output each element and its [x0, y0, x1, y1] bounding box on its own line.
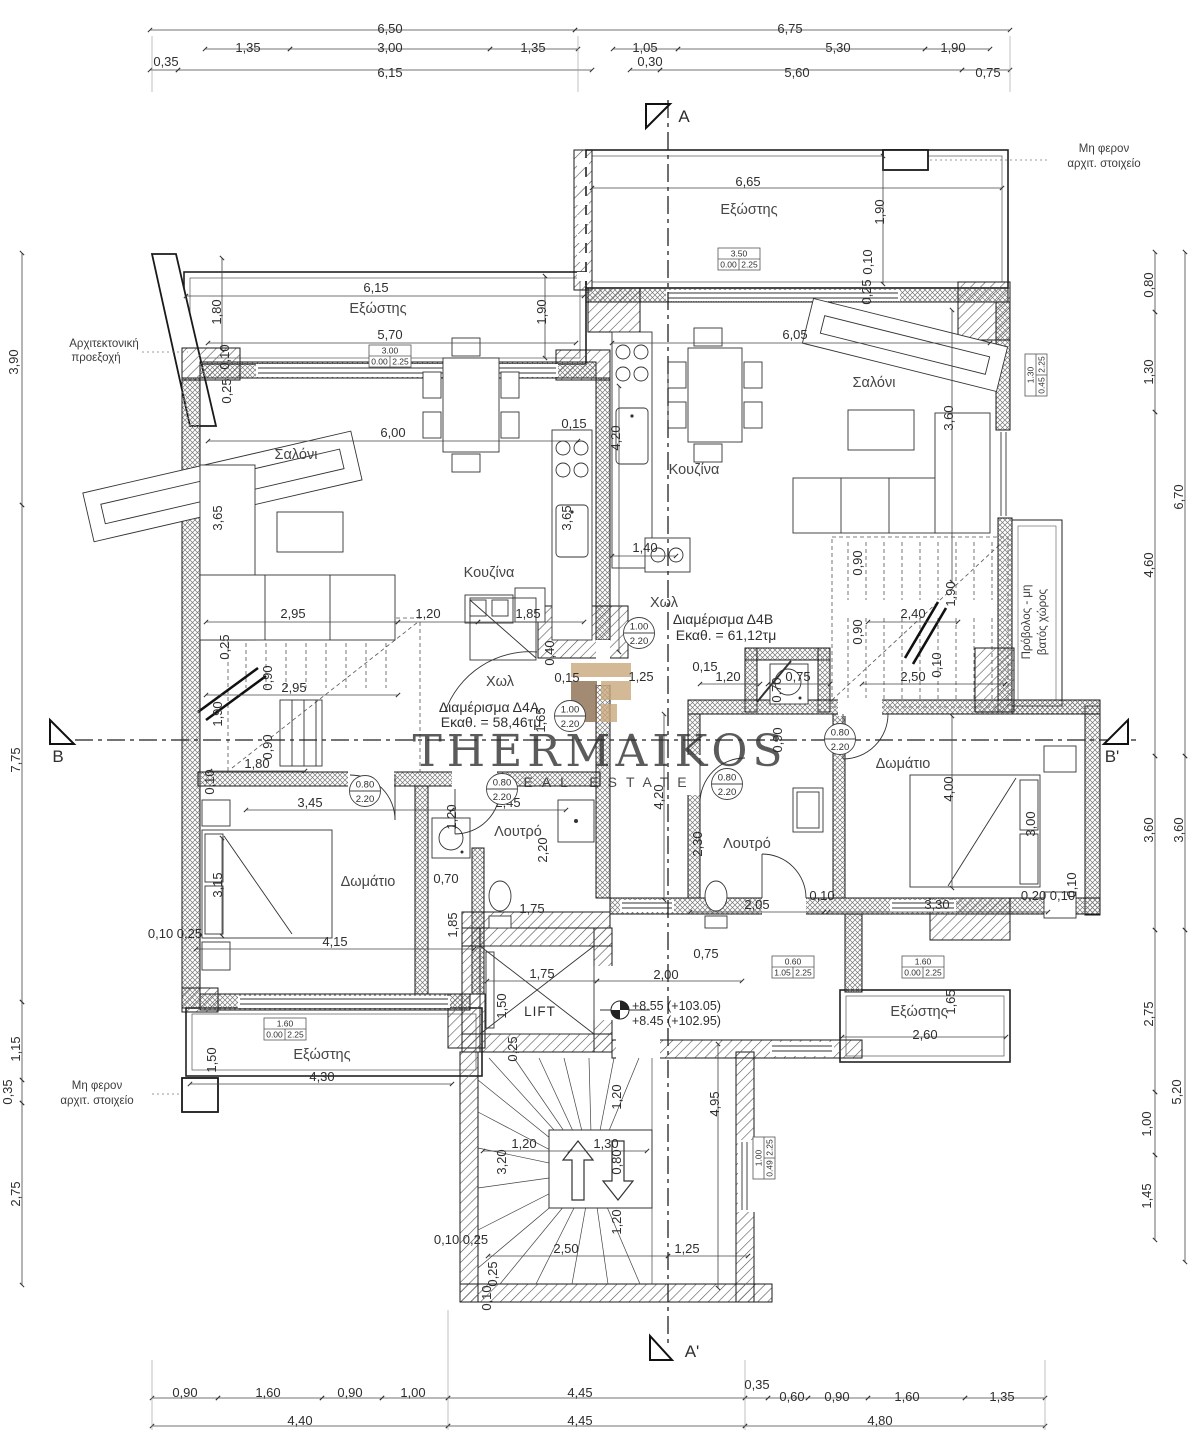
dimension-label: 4,20	[608, 425, 623, 450]
dimension-label: 1,60	[894, 1389, 919, 1404]
dimension-label: 1,75	[519, 901, 544, 916]
svg-text:0.45: 0.45	[1037, 377, 1047, 394]
dimension-label: 2,00	[653, 967, 678, 982]
annotation-label: βατός χώρος	[1037, 588, 1049, 655]
dimension-label: 4,60	[1141, 552, 1156, 577]
dimension-label: 0,90	[850, 550, 865, 575]
window-size-tag: 1.300.452.25	[1025, 354, 1047, 396]
dimension-label: 6,50	[377, 21, 402, 36]
dimension-label: 0,35	[153, 54, 178, 69]
dimension-label: 6,70	[1171, 484, 1186, 509]
window-size-tag: 3.500.002.25	[718, 248, 760, 270]
door-size-tag: 1.002.20	[624, 618, 655, 649]
svg-text:1.00: 1.00	[754, 1149, 764, 1166]
dimension-label: 3,15	[210, 872, 225, 897]
svg-text:2.20: 2.20	[831, 742, 850, 753]
dimension-label: 4,45	[567, 1413, 592, 1428]
dimension-label: 4,80	[867, 1413, 892, 1428]
window-size-tag: 1.600.002.25	[902, 956, 944, 978]
svg-text:0.00: 0.00	[266, 1030, 283, 1040]
dimension-label: 0,40	[542, 640, 557, 665]
dimension-label: 0,15	[554, 670, 579, 685]
svg-text:0.00: 0.00	[904, 968, 921, 978]
dimension-label: 0,25	[217, 634, 232, 659]
room-label: Χωλ	[650, 595, 679, 611]
dimension-label: 0,25	[485, 1261, 500, 1286]
room-label: Σαλόνι	[853, 375, 896, 391]
dimension-label: 4,45	[567, 1385, 592, 1400]
svg-text:2.20: 2.20	[356, 794, 375, 805]
dimension-label: 1,90	[534, 299, 549, 324]
door-size-tag: 0.802.20	[825, 724, 856, 755]
dimension-label: 1,20	[511, 1136, 536, 1151]
dimension-label: 3,65	[559, 505, 574, 530]
annotation-label: αρχιτ. στοιχείο	[60, 1095, 133, 1107]
floor-plan-drawing: 6,506,751,353,001,351,055,301,900,356,15…	[0, 0, 1200, 1440]
dimension-label: 1,35	[235, 40, 260, 55]
dimension-label: 4,95	[707, 1091, 722, 1116]
section-marker-b-icon	[50, 720, 74, 744]
dimension-label: 1,30	[1141, 359, 1156, 384]
dimension-label: 4,40	[287, 1413, 312, 1428]
dimension-label: 0,80	[609, 1149, 624, 1174]
dimension-label: 3,90	[6, 349, 21, 374]
dimension-label: 0,15	[692, 659, 717, 674]
svg-text:1.60: 1.60	[915, 957, 932, 967]
svg-text:1.00: 1.00	[561, 705, 580, 716]
dimension-label: 7,75	[8, 747, 23, 772]
elevation-label: +8.45 (+102.95)	[632, 1014, 721, 1028]
dimension-label: 0,35	[744, 1377, 769, 1392]
dimension-label: 1,20	[609, 1084, 624, 1109]
door-size-tag: 0.802.20	[712, 769, 743, 800]
room-label: Εξώστης	[293, 1047, 350, 1063]
dimension-label: 0,90	[337, 1385, 362, 1400]
dimension-label: 2,75	[8, 1181, 23, 1206]
dimension-label: 3,00	[1023, 811, 1038, 836]
dimension-label: 0,10	[217, 344, 232, 369]
svg-text:2.25: 2.25	[795, 968, 812, 978]
window-size-tag: 3.000.002.25	[369, 345, 411, 367]
dimension-label: 0,25	[219, 378, 234, 403]
dimension-label: 1,20	[444, 804, 459, 829]
room-label: Δωμάτιο	[341, 874, 396, 890]
dimension-label: 5,20	[1169, 1079, 1184, 1104]
annotation-label: Πρόβολος - μη	[1021, 585, 1033, 660]
dimension-label: 0,10	[860, 249, 875, 274]
dimension-label: 0,70	[433, 871, 458, 886]
dimension-label: 5,60	[784, 65, 809, 80]
watermark-tagline: REAL ESTATE	[504, 774, 695, 790]
svg-text:3.50: 3.50	[731, 249, 748, 259]
dimension-label: 6,15	[377, 65, 402, 80]
dimension-label: 6,75	[777, 21, 802, 36]
door-size-tag: 0.802.20	[350, 776, 381, 807]
dimension-label: 0,75	[785, 669, 810, 684]
dimension-label: 0,90	[172, 1385, 197, 1400]
dimension-label: 0,80	[1141, 272, 1156, 297]
svg-text:0.80: 0.80	[831, 728, 850, 739]
dimension-label: 0,25	[859, 279, 874, 304]
dimension-label: 1,20	[609, 1209, 624, 1234]
non-bearing-element-top	[883, 150, 928, 170]
dimension-label: 0,35	[0, 1079, 15, 1104]
apartment-label: Διαμέρισμα Δ4Α	[439, 699, 540, 715]
dimension-label: 1,00	[400, 1385, 425, 1400]
dimension-label: 6,00	[380, 425, 405, 440]
dimension-label: 0,10	[929, 652, 944, 677]
dimension-label: 2,50	[553, 1241, 578, 1256]
dimension-label: 0,75	[693, 946, 718, 961]
dimension-label: 1,35	[520, 40, 545, 55]
svg-text:2.25: 2.25	[925, 968, 942, 978]
svg-text:1.30: 1.30	[1026, 366, 1036, 383]
svg-text:0.80: 0.80	[493, 778, 512, 789]
annotation-label: προεξοχή	[71, 352, 120, 364]
section-marker-a2-icon	[650, 1336, 672, 1360]
lift-label: LIFT	[524, 1004, 556, 1019]
dimension-label: 0,75	[975, 65, 1000, 80]
annotation-label: Μη φερον	[1079, 143, 1130, 155]
room-label: Κουζίνα	[669, 462, 720, 478]
dimension-label: 6,15	[363, 280, 388, 295]
dimension-label: 2,95	[280, 606, 305, 621]
room-label: Εξώστης	[349, 301, 406, 317]
svg-text:2.25: 2.25	[287, 1030, 304, 1040]
floor-plan-page: 6,506,751,353,001,351,055,301,900,356,15…	[0, 0, 1200, 1440]
dimension-label: 1,20	[415, 606, 440, 621]
dimension-label: 3,00	[377, 40, 402, 55]
dimension-label: 1,90	[872, 199, 887, 224]
dimension-label: 1,90	[940, 40, 965, 55]
elevation-label: +8.55 (+103.05)	[632, 999, 721, 1013]
dimension-label: 2,40	[900, 606, 925, 621]
dimension-label: 3,30	[924, 897, 949, 912]
room-label: Σαλόνι	[275, 447, 318, 463]
dimension-label: 1,80	[244, 756, 269, 771]
dimension-label: 2,95	[281, 680, 306, 695]
door-size-tag: 1.002.20	[555, 701, 586, 732]
svg-text:0.49: 0.49	[765, 1160, 775, 1177]
dimension-label: 1,25	[628, 669, 653, 684]
dimension-label: 3,60	[1141, 817, 1156, 842]
window-size-tag: 1.000.492.25	[753, 1137, 775, 1179]
dimension-label: 4,15	[322, 934, 347, 949]
dimension-label: 0,10 0,25	[148, 926, 202, 941]
section-marker-label: B'	[1105, 747, 1120, 766]
dimension-label: 0,10	[809, 888, 834, 903]
svg-text:2.20: 2.20	[561, 719, 580, 730]
dimension-label: 1,80	[209, 299, 224, 324]
dimension-label: 0,15	[561, 416, 586, 431]
dimension-label: 0,70	[769, 677, 784, 702]
room-label: Χωλ	[486, 674, 515, 690]
dimension-label: 1,05	[632, 40, 657, 55]
dimension-label: 4,00	[941, 776, 956, 801]
section-marker-b2-icon	[1104, 720, 1128, 744]
dimension-label: 1,15	[8, 1036, 23, 1061]
svg-text:0.80: 0.80	[356, 780, 375, 791]
dimension-label: 1,65	[943, 989, 958, 1014]
dimension-label: 2,05	[744, 897, 769, 912]
dimension-label: 1,40	[632, 540, 657, 555]
non-bearing-element-bottom	[182, 1078, 218, 1112]
section-marker-label: A	[678, 107, 690, 126]
svg-text:1.60: 1.60	[277, 1019, 294, 1029]
dimension-label: 1,25	[674, 1241, 699, 1256]
dimension-label: 2,50	[900, 669, 925, 684]
dimension-label: 1,35	[989, 1389, 1014, 1404]
annotation-label: Μη φερον	[72, 1080, 123, 1092]
dimension-label: 0,25	[505, 1036, 520, 1061]
svg-text:0.60: 0.60	[785, 957, 802, 967]
svg-text:2.25: 2.25	[392, 357, 409, 367]
dimension-label: 2,20	[535, 837, 550, 862]
dimension-label: 5,30	[825, 40, 850, 55]
svg-text:2.25: 2.25	[741, 260, 758, 270]
section-marker-label: A'	[685, 1342, 700, 1361]
room-label: Δωμάτιο	[876, 756, 931, 772]
apartment-label: Διαμέρισμα Δ4Β	[673, 611, 773, 627]
room-label: Εξώστης	[720, 202, 777, 218]
svg-text:0.80: 0.80	[718, 773, 737, 784]
section-marker-label: B	[52, 747, 63, 766]
dimension-label: 3,65	[210, 505, 225, 530]
dimension-label: 1,90	[210, 701, 225, 726]
dimension-label: 3,60	[1171, 817, 1186, 842]
svg-text:2.20: 2.20	[630, 636, 649, 647]
svg-text:2.20: 2.20	[493, 792, 512, 803]
svg-text:2.20: 2.20	[718, 787, 737, 798]
dimension-label: 0,90	[260, 665, 275, 690]
dimension-label: 0,10	[202, 769, 217, 794]
dimension-label: 1,90	[943, 581, 958, 606]
window-size-tag: 0.601.052.25	[772, 956, 814, 978]
svg-text:1.00: 1.00	[630, 622, 649, 633]
room-label: Λουτρό	[723, 836, 771, 852]
dimension-label: 0,10	[479, 1285, 494, 1310]
apartment-label: Εκαθ. = 61,12τμ	[676, 627, 777, 643]
dimension-label: 1,85	[445, 912, 460, 937]
dimension-label: 2,75	[1141, 1001, 1156, 1026]
dimension-label: 2,60	[912, 1027, 937, 1042]
dimension-label: 1,20	[715, 669, 740, 684]
dimension-label: 0,10	[1064, 872, 1079, 897]
dimension-label: 3,60	[941, 405, 956, 430]
dimension-label: 1,75	[529, 966, 554, 981]
dimension-label: 1,30	[593, 1136, 618, 1151]
dimension-label: 0,10 0,25	[434, 1232, 488, 1247]
door-size-tag: 0.802.20	[487, 774, 518, 805]
dimension-label: 4,30	[309, 1069, 334, 1084]
dimension-label: 0,30	[637, 54, 662, 69]
left-living	[83, 338, 519, 640]
window-size-tag: 1.600.002.25	[264, 1018, 306, 1040]
dimension-label: 0,90	[824, 1389, 849, 1404]
svg-text:1.05: 1.05	[774, 968, 791, 978]
dimension-label: 6,05	[782, 327, 807, 342]
section-marker-a-icon	[646, 104, 670, 128]
room-label: Κουζίνα	[464, 565, 515, 581]
dimension-label: 2,30	[690, 831, 705, 856]
dimension-label: 1,50	[494, 993, 509, 1018]
svg-text:0.00: 0.00	[720, 260, 737, 270]
dimension-label: 1,85	[515, 606, 540, 621]
svg-text:3.00: 3.00	[382, 346, 399, 356]
annotation-label: αρχιτ. στοιχείο	[1067, 158, 1140, 170]
dimension-label: 6,65	[735, 174, 760, 189]
svg-text:2.25: 2.25	[765, 1139, 775, 1156]
svg-text:2.25: 2.25	[1037, 356, 1047, 373]
dimension-label: 1,45	[1139, 1183, 1154, 1208]
dimension-label: 1,60	[255, 1385, 280, 1400]
dimension-label: 0,90	[850, 619, 865, 644]
svg-text:0.00: 0.00	[371, 357, 388, 367]
right-living	[668, 298, 1008, 533]
dimension-label: 5,70	[377, 327, 402, 342]
dimension-label: 1,50	[204, 1047, 219, 1072]
dimension-label: 3,45	[297, 795, 322, 810]
dimension-label: 3,20	[494, 1149, 509, 1174]
room-label: Εξώστης	[890, 1004, 947, 1020]
dimension-label: 0,60	[779, 1389, 804, 1404]
dimension-label: 1,00	[1139, 1111, 1154, 1136]
annotation-label: Αρχιτεκτονική	[69, 338, 138, 350]
